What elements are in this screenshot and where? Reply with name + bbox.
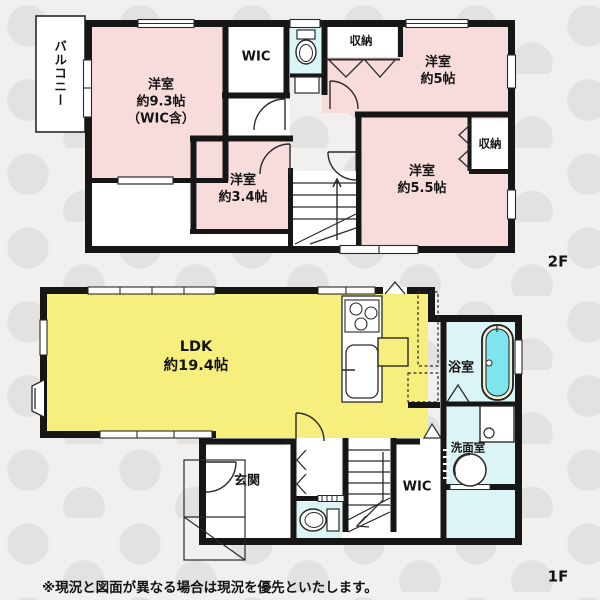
sliding-door <box>118 177 173 184</box>
room-label-washroom: 洗面室 <box>451 441 486 456</box>
window <box>508 190 516 219</box>
window <box>515 340 522 374</box>
room-label-entrance: 玄関 <box>234 474 260 491</box>
room-label-wic-2f: WIC <box>242 50 271 67</box>
sink-icon <box>342 345 378 398</box>
room-label-bedroom93: 洋室 約9.3帖 （WIC含） <box>127 78 195 129</box>
room-label-wic-1f: WIC <box>403 480 432 497</box>
room-label-closet-north: 収納 <box>350 34 373 49</box>
stove-icon <box>345 300 379 332</box>
room-note: （WIC含） <box>127 111 195 128</box>
utility-floor <box>447 490 515 538</box>
stairs-1f-floor <box>348 438 390 532</box>
sliding-door-hatch <box>318 496 344 502</box>
room-label-bedroom5: 洋室 約5帖 <box>420 55 455 89</box>
bathtub-icon <box>482 325 513 400</box>
window <box>100 431 212 438</box>
floor-label-1f: 1F <box>548 567 569 587</box>
second-floor-plan <box>36 16 516 254</box>
washbasin-icon <box>454 454 486 486</box>
room-size: 約5.5帖 <box>397 181 446 198</box>
toilet-door <box>295 77 319 93</box>
room-label-ldk: LDK 約19.4帖 <box>164 338 229 376</box>
room-name: 洋室 <box>127 78 195 95</box>
room-label-closet-east: 収納 <box>479 137 502 152</box>
room-name: LDK <box>164 338 229 357</box>
window <box>508 55 516 88</box>
disclaimer-text: ※現況と図面が異なる場合は現況を優先といたします。 <box>42 576 378 596</box>
window <box>40 320 47 355</box>
window <box>290 20 320 28</box>
room-size: 約3.4帖 <box>218 190 267 207</box>
staircase-2f <box>293 171 356 246</box>
floorplan-canvas: バルコニー 洋室 約9.3帖 （WIC含） WIC 収納 洋室 約5帖 収納 洋… <box>0 0 600 600</box>
kitchen-door <box>383 282 407 294</box>
room-name: 洋室 <box>420 55 455 72</box>
room-label-bathroom: 浴室 <box>448 361 474 378</box>
room-name: 洋室 <box>218 173 267 190</box>
room-label-bedroom55: 洋室 約5.5帖 <box>397 164 446 198</box>
room-label-bedroom34: 洋室 約3.4帖 <box>218 173 267 207</box>
first-floor-plan <box>32 282 522 560</box>
floor-label-2f: 2F <box>548 252 569 272</box>
floorplan-drawing <box>0 0 600 600</box>
room-size: 約5帖 <box>420 72 455 89</box>
bay-window <box>32 380 44 417</box>
island-counter <box>378 338 408 366</box>
toilet-icon <box>300 509 339 531</box>
washing-machine-icon <box>480 406 514 442</box>
room-size: 約9.3帖 <box>127 95 195 112</box>
room-name: 洋室 <box>397 164 446 181</box>
balcony-label: バルコニー <box>51 39 67 107</box>
room-size: 約19.4帖 <box>164 357 229 376</box>
